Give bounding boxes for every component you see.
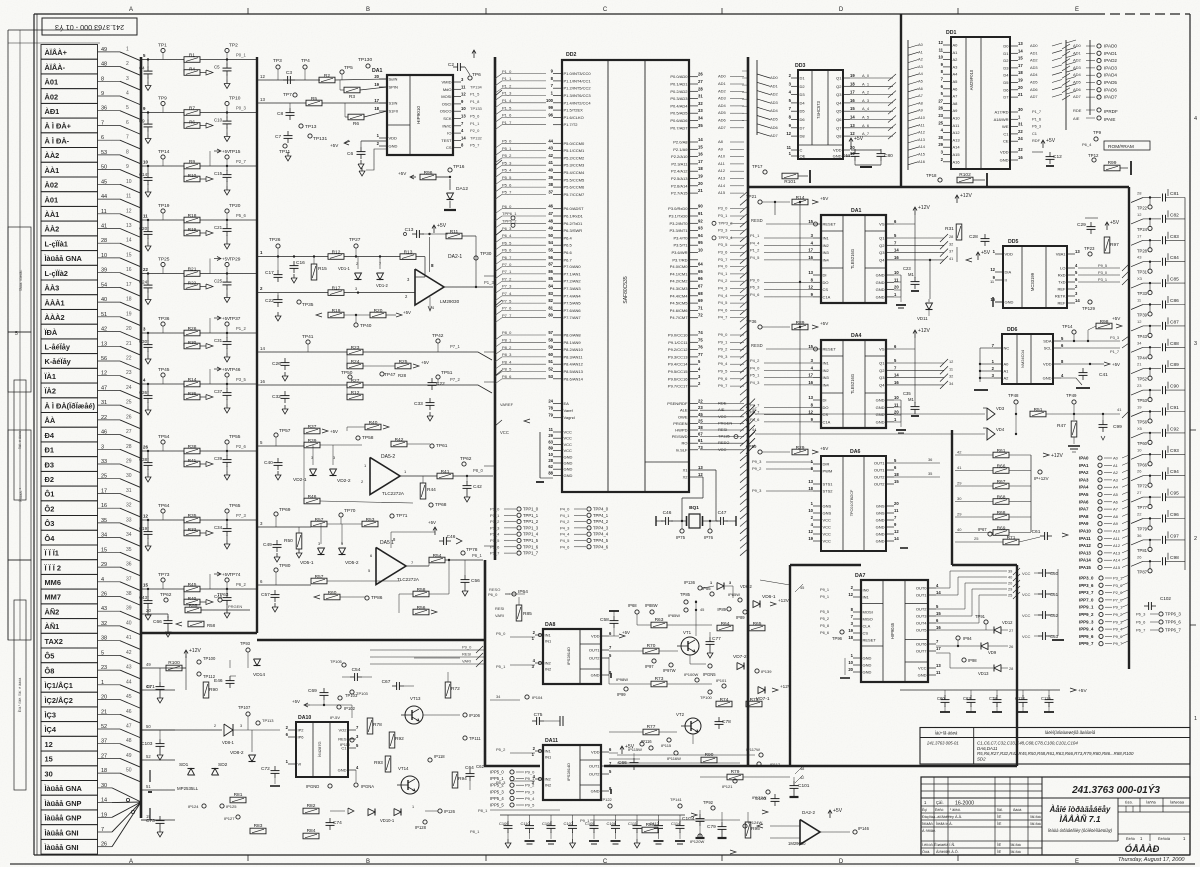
svg-text:TP71: TP71 bbox=[396, 513, 408, 519]
svg-text:TP13: TP13 bbox=[305, 124, 317, 130]
svg-text:A1: A1 bbox=[918, 49, 923, 54]
svg-text:IP121: IP121 bbox=[722, 784, 733, 789]
svg-text:+5V: +5V bbox=[222, 572, 230, 577]
svg-text:TP28: TP28 bbox=[1137, 248, 1148, 253]
svg-text:R27: R27 bbox=[351, 378, 360, 384]
svg-text:P4_6: P4_6 bbox=[718, 307, 728, 312]
svg-text:IP89: IP89 bbox=[717, 607, 726, 612]
svg-text:IP6: IP6 bbox=[298, 735, 305, 740]
svg-text:R66: R66 bbox=[997, 464, 1006, 470]
svg-text:P4_2: P4_2 bbox=[750, 358, 760, 363]
svg-text:C26: C26 bbox=[272, 361, 281, 367]
svg-text:75: 75 bbox=[698, 337, 703, 342]
svg-text:22: 22 bbox=[1137, 512, 1142, 517]
svg-text:Ìàüåå GNA: Ìàüåå GNA bbox=[44, 254, 83, 263]
svg-text:TPC010TBDCF: TPC010TBDCF bbox=[850, 489, 854, 516]
svg-text:11: 11 bbox=[143, 214, 148, 219]
svg-text:VCC: VCC bbox=[823, 539, 832, 544]
svg-text:C33: C33 bbox=[414, 401, 423, 407]
svg-text:P1.6/CLKO: P1.6/CLKO bbox=[564, 115, 584, 120]
svg-text:A13: A13 bbox=[953, 137, 961, 142]
svg-text:TP86: TP86 bbox=[371, 595, 383, 601]
svg-text:ïîäï.ðàá: ïîäï.ðàá bbox=[1010, 849, 1021, 854]
svg-text:C1,C6,C7,C32,C33,C48,C68,C78,C: C1,C6,C7,C32,C33,C48,C68,C78,C100,C101,C… bbox=[977, 741, 1078, 746]
svg-text:ÀÀÀ1: ÀÀÀ1 bbox=[45, 298, 65, 307]
svg-text:C85: C85 bbox=[1170, 277, 1179, 283]
svg-text:18: 18 bbox=[1018, 70, 1023, 75]
svg-text:P9_7: P9_7 bbox=[1113, 641, 1123, 646]
svg-text:IPP9_6: IPP9_6 bbox=[1079, 634, 1094, 639]
svg-text:+5V: +5V bbox=[330, 429, 338, 434]
svg-text:48: 48 bbox=[126, 738, 132, 744]
svg-text:A11: A11 bbox=[953, 123, 961, 128]
svg-text:IP68: IP68 bbox=[628, 603, 637, 608]
svg-text:A7: A7 bbox=[1113, 507, 1119, 512]
svg-text:GND: GND bbox=[876, 539, 885, 544]
svg-text:C93: C93 bbox=[1170, 448, 1179, 454]
svg-text:R60: R60 bbox=[328, 590, 337, 596]
svg-text:VD8-1: VD8-1 bbox=[222, 740, 235, 745]
svg-text:C40: C40 bbox=[264, 460, 273, 466]
svg-text:DA6,DA11: DA6,DA11 bbox=[977, 746, 998, 751]
svg-text:RDE: RDE bbox=[1073, 108, 1082, 113]
svg-text:TP29: TP29 bbox=[229, 257, 241, 263]
svg-text:À02: À02 bbox=[45, 92, 59, 101]
svg-text:VCC: VCC bbox=[500, 430, 509, 435]
svg-text:C47: C47 bbox=[718, 510, 727, 516]
svg-text:C102: C102 bbox=[1160, 596, 1171, 601]
svg-text:P4_3: P4_3 bbox=[560, 525, 570, 530]
svg-text:P1_5: P1_5 bbox=[502, 105, 512, 110]
svg-text:L-çÏÏà2: L-çÏÏà2 bbox=[45, 269, 68, 278]
svg-text:P3.7/RD: P3.7/RD bbox=[672, 257, 687, 262]
svg-text:P9_4: P9_4 bbox=[525, 796, 535, 801]
svg-text:87: 87 bbox=[548, 262, 553, 267]
svg-text:26: 26 bbox=[938, 106, 943, 111]
svg-text:17: 17 bbox=[936, 646, 941, 651]
svg-text:ÌÇ3: ÌÇ3 bbox=[44, 711, 57, 720]
svg-text:AD3: AD3 bbox=[1073, 65, 1082, 70]
svg-text:C46: C46 bbox=[447, 534, 456, 540]
svg-text:91: 91 bbox=[698, 211, 703, 216]
svg-text:AD4: AD4 bbox=[1030, 72, 1038, 77]
svg-text:1M29030: 1M29030 bbox=[788, 841, 806, 846]
svg-text:C103: C103 bbox=[141, 741, 153, 747]
svg-text:D7: D7 bbox=[800, 125, 806, 130]
svg-text:R41: R41 bbox=[188, 458, 197, 463]
svg-text:50: 50 bbox=[146, 724, 151, 729]
svg-text:P8.6/AN14: P8.6/AN14 bbox=[564, 376, 584, 381]
svg-text:P6.0/ADST: P6.0/ADST bbox=[564, 206, 585, 211]
svg-text:17: 17 bbox=[698, 159, 703, 164]
svg-text:10: 10 bbox=[938, 55, 943, 60]
svg-text:IPP3_7: IPP3_7 bbox=[1079, 590, 1094, 595]
svg-text:43: 43 bbox=[126, 665, 132, 671]
svg-text:C14: C14 bbox=[139, 172, 148, 177]
svg-text:AD6: AD6 bbox=[1030, 87, 1038, 92]
svg-text:VD2-2: VD2-2 bbox=[337, 478, 351, 484]
svg-text:P1_6: P1_6 bbox=[490, 544, 500, 549]
svg-text:45: 45 bbox=[800, 585, 804, 590]
svg-text:P1_2: P1_2 bbox=[502, 83, 512, 88]
svg-text:8: 8 bbox=[431, 263, 434, 268]
svg-text:TP70: TP70 bbox=[344, 508, 356, 514]
svg-text:IP99: IP99 bbox=[617, 692, 626, 697]
svg-text:C115: C115 bbox=[1041, 696, 1051, 701]
svg-text:ïîäï.ðàá: ïîäï.ðàá bbox=[1010, 842, 1021, 847]
svg-text:A9: A9 bbox=[718, 146, 724, 151]
svg-text:VCC: VCC bbox=[1022, 592, 1031, 597]
svg-text:+5V: +5V bbox=[222, 257, 230, 262]
svg-text:Ëèò.: Ëèò. bbox=[1125, 801, 1133, 805]
svg-text:CS: CS bbox=[446, 145, 452, 150]
svg-text:A2: A2 bbox=[1004, 376, 1010, 381]
svg-text:13: 13 bbox=[808, 395, 813, 400]
svg-text:P2.5/A13: P2.5/A13 bbox=[671, 176, 688, 181]
svg-text:C57: C57 bbox=[261, 592, 270, 598]
svg-text:P6_7: P6_7 bbox=[1136, 628, 1146, 633]
svg-text:A_5: A_5 bbox=[862, 115, 870, 120]
svg-text:A12: A12 bbox=[953, 130, 961, 135]
svg-text:X5: X5 bbox=[1137, 426, 1143, 431]
svg-text:P9_2: P9_2 bbox=[718, 347, 728, 352]
svg-text:Ìàëèî(àïîøàæøë)îâ ãøàîæîâ: Ìàëèî(àïîøàæøë)îâ ãøàîæîâ bbox=[1045, 730, 1096, 735]
svg-text:IPA9: IPA9 bbox=[1079, 521, 1089, 526]
svg-text:65: 65 bbox=[698, 269, 703, 274]
svg-text:P1_1: P1_1 bbox=[750, 233, 760, 238]
svg-text:D: D bbox=[839, 7, 844, 13]
svg-text:TP57: TP57 bbox=[279, 428, 291, 434]
svg-text:26: 26 bbox=[1009, 644, 1013, 649]
svg-text:30: 30 bbox=[1018, 107, 1023, 112]
svg-text:44: 44 bbox=[126, 679, 132, 685]
svg-text:IP+12V: IP+12V bbox=[1034, 476, 1049, 481]
svg-text:TP25: TP25 bbox=[158, 257, 170, 263]
svg-text:TPP4_3: TPP4_3 bbox=[593, 525, 609, 530]
svg-text:100: 100 bbox=[546, 98, 554, 103]
svg-text:RESI: RESI bbox=[718, 427, 727, 432]
svg-text:RxD: RxD bbox=[1058, 273, 1066, 278]
svg-text:Ìàüåå GNP: Ìàüåå GNP bbox=[44, 814, 82, 823]
svg-text:AD7: AD7 bbox=[1030, 94, 1038, 99]
svg-text:TPP3_2: TPP3_2 bbox=[718, 220, 733, 225]
svg-text:R92: R92 bbox=[395, 736, 404, 742]
svg-text:IPS2814D: IPS2814D bbox=[566, 647, 571, 665]
svg-text:DO: DO bbox=[823, 405, 829, 410]
svg-text:P1.7/T2: P1.7/T2 bbox=[564, 122, 579, 127]
svg-text:R41: R41 bbox=[441, 469, 450, 475]
svg-text:TP87: TP87 bbox=[1137, 569, 1148, 574]
svg-text:26: 26 bbox=[1137, 469, 1142, 474]
svg-text:ÏÐÀ: ÏÐÀ bbox=[44, 328, 58, 337]
svg-text:A_6: A_6 bbox=[862, 123, 870, 128]
svg-text:P5_5: P5_5 bbox=[820, 609, 829, 614]
svg-text:VD11: VD11 bbox=[917, 316, 928, 321]
svg-text:IP136: IP136 bbox=[684, 580, 696, 585]
svg-text:A8: A8 bbox=[918, 100, 923, 105]
svg-text:R21: R21 bbox=[188, 267, 197, 273]
svg-text:P9.2/CC12: P9.2/CC12 bbox=[668, 347, 688, 352]
svg-text:AD6: AD6 bbox=[718, 118, 727, 123]
svg-text:TP42: TP42 bbox=[432, 333, 444, 339]
svg-text:29: 29 bbox=[938, 142, 943, 147]
svg-text:RESET: RESET bbox=[863, 638, 877, 643]
svg-text:OE: OE bbox=[800, 154, 806, 159]
svg-text:C107: C107 bbox=[564, 821, 574, 826]
svg-text:C31: C31 bbox=[214, 338, 223, 343]
svg-text:A_3: A_3 bbox=[862, 98, 870, 103]
svg-text:VT2: VT2 bbox=[676, 712, 685, 717]
svg-text:10: 10 bbox=[848, 660, 853, 665]
svg-text:C29: C29 bbox=[1077, 222, 1086, 228]
svg-text:10: 10 bbox=[143, 160, 148, 165]
svg-text:28: 28 bbox=[548, 458, 553, 463]
svg-text:64: 64 bbox=[698, 262, 703, 267]
svg-text:P1.3/INT6/CC3: P1.3/INT6/CC3 bbox=[564, 93, 592, 98]
svg-text:P3_3: P3_3 bbox=[1110, 335, 1119, 340]
svg-text:CS: CS bbox=[823, 412, 829, 417]
svg-text:TP58: TP58 bbox=[362, 435, 374, 441]
svg-text:P4_4: P4_4 bbox=[560, 532, 570, 537]
svg-text:Ìàüåå GNA: Ìàüåå GNA bbox=[44, 784, 83, 793]
svg-text:2: 2 bbox=[126, 61, 129, 67]
svg-text:+5V: +5V bbox=[403, 310, 411, 315]
svg-text:GND: GND bbox=[1000, 158, 1009, 163]
svg-text:20: 20 bbox=[1018, 85, 1023, 90]
svg-text:P3_7: P3_7 bbox=[718, 257, 728, 262]
svg-text:P9_0: P9_0 bbox=[525, 770, 535, 775]
svg-text:VD13: VD13 bbox=[978, 671, 989, 676]
svg-text:VD5-2: VD5-2 bbox=[345, 560, 359, 566]
svg-text:P6_3: P6_3 bbox=[750, 285, 760, 290]
svg-text:IP2: IP2 bbox=[298, 728, 305, 733]
svg-text:SCL: SCL bbox=[1044, 346, 1053, 351]
svg-text:25: 25 bbox=[974, 536, 979, 541]
svg-text:A3: A3 bbox=[1113, 477, 1119, 482]
svg-text:C19: C19 bbox=[139, 526, 148, 531]
svg-text:R22: R22 bbox=[188, 281, 197, 286]
svg-text:3: 3 bbox=[729, 581, 731, 585]
svg-text:VO2: VO2 bbox=[338, 728, 347, 733]
svg-text:P5_2: P5_2 bbox=[820, 616, 829, 621]
svg-text:P6.3/SWR: P6.3/SWR bbox=[564, 228, 583, 233]
svg-text:MM6: MM6 bbox=[45, 578, 61, 587]
svg-text:OUT4: OUT4 bbox=[916, 621, 927, 626]
svg-text:21: 21 bbox=[1137, 362, 1142, 367]
svg-text:P2.1/A9: P2.1/A9 bbox=[673, 147, 688, 152]
svg-text:16: 16 bbox=[260, 379, 265, 384]
svg-text:P1.2/INT5/CC2: P1.2/INT5/CC2 bbox=[564, 86, 592, 91]
svg-text:AD4: AD4 bbox=[770, 108, 779, 113]
svg-text:VDD: VDD bbox=[591, 750, 600, 755]
svg-text:R40: R40 bbox=[369, 420, 378, 426]
svg-text:41: 41 bbox=[957, 465, 962, 470]
svg-text:VD9: VD9 bbox=[988, 650, 997, 655]
svg-text:P0.3/AD3: P0.3/AD3 bbox=[670, 96, 688, 101]
svg-text:76: 76 bbox=[698, 345, 703, 350]
svg-text:A0: A0 bbox=[1004, 362, 1010, 367]
svg-text:22: 22 bbox=[143, 267, 148, 272]
svg-text:P4.4/CM4: P4.4/CM4 bbox=[670, 293, 689, 298]
svg-text:PE/SWD: PE/SWD bbox=[672, 434, 688, 439]
svg-text:Vagnd: Vagnd bbox=[564, 415, 575, 420]
svg-text:A14: A14 bbox=[953, 145, 961, 150]
svg-text:REF: REF bbox=[1058, 301, 1067, 306]
svg-text:HIP9010: HIP9010 bbox=[416, 106, 421, 124]
svg-text:16: 16 bbox=[698, 152, 703, 157]
svg-text:IN1: IN1 bbox=[823, 361, 830, 366]
svg-text:10: 10 bbox=[894, 270, 899, 275]
svg-text:R39: R39 bbox=[308, 438, 317, 444]
svg-text:R9: R9 bbox=[189, 159, 195, 165]
svg-text:P6_3: P6_3 bbox=[502, 226, 512, 231]
svg-text:P4_6: P4_6 bbox=[750, 292, 760, 297]
svg-text:C82: C82 bbox=[1170, 212, 1179, 218]
svg-text:Ô2: Ô2 bbox=[45, 504, 55, 513]
svg-text:C106: C106 bbox=[607, 821, 617, 826]
svg-text:A11: A11 bbox=[718, 161, 726, 166]
svg-text:55: 55 bbox=[548, 248, 553, 253]
svg-text:TP62: TP62 bbox=[160, 592, 172, 598]
svg-text:P5.5/CCM5: P5.5/CCM5 bbox=[564, 177, 585, 182]
svg-text:P6_6: P6_6 bbox=[820, 630, 829, 635]
svg-text:1: 1 bbox=[1194, 716, 1197, 722]
svg-text:R90: R90 bbox=[209, 687, 218, 693]
svg-text:VDD: VDD bbox=[833, 148, 842, 153]
svg-text:32: 32 bbox=[126, 503, 132, 509]
svg-text:ÀÑ2: ÀÑ2 bbox=[45, 608, 60, 617]
svg-text:VCC: VCC bbox=[564, 436, 573, 441]
svg-text:12: 12 bbox=[786, 131, 791, 136]
svg-text:28: 28 bbox=[1137, 191, 1142, 196]
svg-text:IN2: IN2 bbox=[823, 243, 830, 248]
svg-text:A3: A3 bbox=[918, 64, 923, 69]
svg-text:R44: R44 bbox=[427, 487, 436, 493]
svg-text:P8_1: P8_1 bbox=[478, 808, 488, 813]
svg-text:P5_6: P5_6 bbox=[470, 114, 480, 119]
svg-text:C24: C24 bbox=[139, 280, 148, 285]
svg-text:P1_5: P1_5 bbox=[490, 538, 500, 543]
svg-text:3: 3 bbox=[333, 456, 335, 460]
svg-text:GND: GND bbox=[564, 473, 573, 478]
svg-text:P9.3/CC13: P9.3/CC13 bbox=[668, 354, 688, 359]
svg-text:IPA13: IPA13 bbox=[1079, 550, 1091, 555]
svg-text:Ìàññà: Ìàññà bbox=[1146, 801, 1156, 805]
svg-text:TP12: TP12 bbox=[1088, 153, 1099, 158]
svg-text:10: 10 bbox=[548, 452, 553, 457]
svg-text:R35: R35 bbox=[188, 513, 197, 519]
svg-text:16: 16 bbox=[1018, 155, 1023, 160]
svg-text:Ïîäï.: Ïîäï. bbox=[997, 808, 1003, 812]
svg-text:27: 27 bbox=[1009, 628, 1013, 633]
svg-text:VDD: VDD bbox=[1005, 252, 1014, 257]
svg-text:VCC: VCC bbox=[564, 448, 573, 453]
svg-text:17: 17 bbox=[1018, 63, 1023, 68]
svg-text:43: 43 bbox=[548, 146, 553, 151]
svg-text:Âîñêðåñ.À.Ô.: Âîñêðåñ.À.Ô. bbox=[936, 849, 959, 854]
svg-text:P4.5/CM5: P4.5/CM5 bbox=[670, 301, 689, 306]
svg-text:ÌÇ4: ÌÇ4 bbox=[44, 725, 57, 734]
svg-text:SDA: SDA bbox=[1043, 339, 1052, 344]
svg-text:R37: R37 bbox=[308, 424, 317, 430]
svg-text:R26: R26 bbox=[188, 326, 197, 332]
svg-text:A10: A10 bbox=[918, 115, 926, 120]
svg-text:Ô3: Ô3 bbox=[45, 519, 55, 528]
svg-text:Ð2: Ð2 bbox=[45, 475, 54, 484]
svg-text:C36: C36 bbox=[139, 390, 148, 395]
svg-text:R6: R6 bbox=[189, 120, 195, 125]
svg-text:R47: R47 bbox=[1057, 423, 1066, 429]
svg-text:TP7: TP7 bbox=[283, 92, 292, 98]
svg-text:10: 10 bbox=[894, 395, 899, 400]
svg-text:C9: C9 bbox=[139, 119, 145, 124]
svg-text:TP64: TP64 bbox=[158, 503, 170, 509]
svg-text:Èçì: Èçì bbox=[922, 807, 927, 812]
svg-text:IP118: IP118 bbox=[434, 754, 445, 759]
svg-text:21: 21 bbox=[698, 188, 703, 193]
svg-text:IP117: IP117 bbox=[770, 762, 781, 767]
svg-text:IPP5_4: IPP5_4 bbox=[490, 796, 504, 801]
svg-text:P7.7/AN7: P7.7/AN7 bbox=[564, 315, 582, 320]
svg-text:Q4: Q4 bbox=[879, 382, 885, 387]
svg-text:12: 12 bbox=[461, 92, 466, 97]
svg-text:P7_5: P7_5 bbox=[502, 298, 512, 303]
svg-text:P8.4/AN12: P8.4/AN12 bbox=[564, 362, 584, 367]
svg-text:OUT0: OUT0 bbox=[916, 586, 927, 591]
svg-text:20: 20 bbox=[126, 326, 132, 332]
svg-text:P2_7: P2_7 bbox=[236, 159, 246, 164]
svg-text:VCC: VCC bbox=[564, 430, 573, 435]
svg-text:C90: C90 bbox=[1170, 384, 1179, 390]
svg-text:TP52: TP52 bbox=[1137, 377, 1148, 382]
svg-text:IP97: IP97 bbox=[645, 664, 654, 669]
svg-text:BQ1: BQ1 bbox=[689, 505, 699, 511]
svg-text:R7: R7 bbox=[189, 106, 195, 112]
svg-text:22: 22 bbox=[698, 399, 703, 404]
svg-text:Thursday, August 17, 2000: Thursday, August 17, 2000 bbox=[1118, 857, 1185, 863]
svg-text:P9_7: P9_7 bbox=[718, 383, 728, 388]
svg-text:IP94: IP94 bbox=[963, 636, 972, 641]
svg-text:L-çÏÏà1: L-çÏÏà1 bbox=[45, 240, 68, 249]
svg-text:12: 12 bbox=[938, 40, 943, 45]
svg-text:+5V: +5V bbox=[625, 744, 635, 750]
svg-text:P3.6/WR: P3.6/WR bbox=[671, 250, 687, 255]
svg-text:RESD: RESD bbox=[751, 218, 763, 223]
svg-text:OUT1: OUT1 bbox=[916, 593, 927, 598]
svg-text:C60: C60 bbox=[937, 696, 945, 701]
svg-text:36: 36 bbox=[1137, 533, 1142, 538]
svg-text:TP48: TP48 bbox=[1008, 393, 1019, 398]
svg-text:R19: R19 bbox=[332, 308, 341, 314]
svg-text:IPA7: IPA7 bbox=[1079, 507, 1089, 512]
svg-text:TP39: TP39 bbox=[1137, 313, 1148, 318]
svg-text:P5.3/CCM3: P5.3/CCM3 bbox=[564, 163, 585, 168]
svg-text:42: 42 bbox=[548, 153, 553, 158]
svg-text:R29: R29 bbox=[796, 445, 805, 451]
svg-text:CS: CS bbox=[863, 631, 869, 636]
svg-text:DIA: DIA bbox=[1005, 270, 1012, 275]
svg-text:AD4: AD4 bbox=[718, 103, 727, 108]
svg-text:P6_0: P6_0 bbox=[502, 204, 512, 209]
svg-text:Êîøìàêîâ Í.Ñ.: Êîøìàêîâ Í.Ñ. bbox=[934, 842, 955, 847]
svg-text:AD6: AD6 bbox=[770, 125, 779, 130]
svg-text:Q3: Q3 bbox=[879, 375, 885, 380]
svg-text:IPA11: IPA11 bbox=[1079, 536, 1091, 541]
svg-text:C108: C108 bbox=[542, 821, 552, 826]
svg-text:DA12: DA12 bbox=[456, 186, 468, 192]
svg-text:31: 31 bbox=[126, 488, 132, 494]
svg-text:TP69: TP69 bbox=[279, 507, 291, 513]
